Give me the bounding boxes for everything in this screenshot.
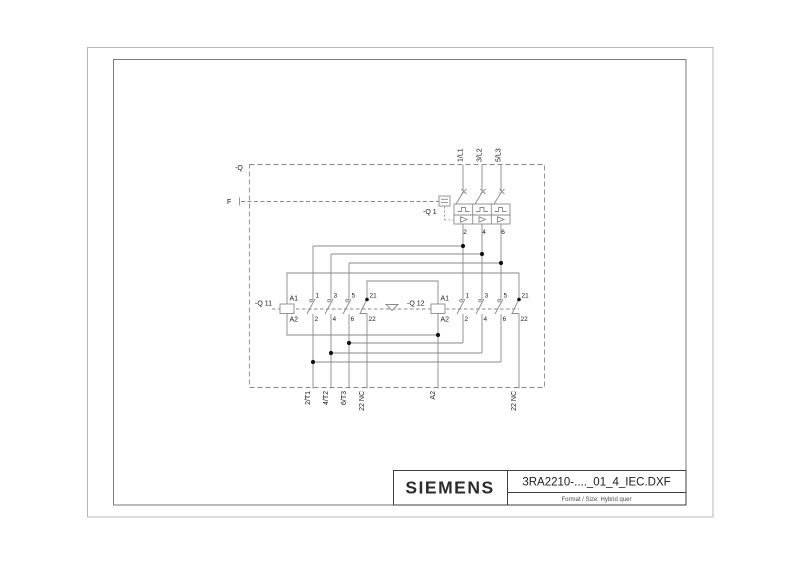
aux-terminal-label: 21 — [370, 293, 378, 300]
pole-terminal-label: 4 — [484, 316, 488, 323]
brand-logo: SIEMENS — [405, 478, 494, 498]
contactor-q12: -Q 12 A1 A2 1 2 3 4 5 6 21 22 — [406, 293, 529, 324]
pole-terminal-label: 6 — [351, 316, 355, 323]
pole-terminal-label: 2 — [465, 316, 469, 323]
breaker-contacts-icon — [456, 189, 505, 204]
nc-contact-icon — [512, 299, 519, 314]
pole-terminal-label: 5 — [504, 293, 508, 300]
schematic-canvas: -Q F 1/L1 3/L2 5/L3 -Q 1 — [0, 0, 800, 565]
outgoing-terminal-label: 2/T1 — [305, 391, 312, 405]
pole-terminal-label: 1 — [316, 293, 320, 300]
no-contact-icon — [457, 299, 503, 314]
breaker-terminal-label: 6 — [501, 229, 505, 236]
boundary-dashed-rect — [250, 165, 545, 388]
incoming-line-label: 1/L1 — [458, 148, 465, 162]
contactor-label: -Q 11 — [255, 301, 272, 308]
incoming-line-label: 5/L3 — [496, 148, 503, 162]
outgoing-terminal-label: 6/T3 — [341, 391, 348, 405]
outgoing-terminal-label: 4/T2 — [323, 391, 330, 405]
contactor-label: -Q 12 — [407, 301, 425, 308]
trip-link-line: F — [227, 198, 439, 207]
no-contact-icon — [307, 299, 351, 314]
outgoing-terminal-label: 22 NC — [511, 391, 518, 411]
pole-terminal-label: 6 — [503, 316, 507, 323]
incoming-lines: 1/L1 3/L2 5/L3 — [458, 148, 503, 191]
inner-frame — [114, 60, 687, 506]
coil-icon — [280, 304, 294, 314]
pole-terminal-label: 3 — [485, 293, 489, 300]
coil-terminal-label: A2 — [290, 317, 299, 324]
coil-terminal-label: A2 — [441, 317, 450, 324]
title-block: SIEMENS 3RA2210-...._01_4_IEC.DXF Format… — [394, 471, 687, 506]
pole-terminal-label: 2 — [315, 316, 319, 323]
format-info: Format / Size: Hybrid quer — [561, 497, 631, 503]
trip-link-label: F — [227, 199, 231, 206]
drawing-filename: 3RA2210-...._01_4_IEC.DXF — [522, 477, 670, 489]
outgoing-terminals: 2/T1 4/T2 6/T3 22 NC A2 22 NC — [305, 391, 518, 411]
breaker-q1: -Q 1 2 4 6 — [423, 189, 510, 236]
magnetic-release-icon — [454, 204, 510, 224]
aux-terminal-label: 22 — [369, 316, 377, 323]
pole-terminal-label: 3 — [334, 293, 338, 300]
incoming-line-label: 3/L2 — [477, 148, 484, 162]
contactor-q11: -Q 11 A1 A2 1 2 3 4 5 6 21 22 — [255, 293, 377, 324]
outgoing-terminal-label: 22 NC — [359, 391, 366, 411]
sheet-frames — [88, 48, 714, 518]
breaker-label: -Q 1 — [423, 209, 437, 216]
mechanical-interlock-icon — [386, 305, 398, 311]
outer-frame — [88, 48, 714, 518]
aux-terminal-label: 21 — [522, 293, 530, 300]
pole-terminal-label: 1 — [466, 293, 470, 300]
breaker-terminal-label: 4 — [482, 229, 486, 236]
supply-wires — [463, 165, 501, 191]
pole-terminal-label: 5 — [352, 293, 356, 300]
pole-terminal-label: 4 — [333, 316, 337, 323]
nc-contact-icon — [360, 299, 367, 314]
drawing-sheet: -Q F 1/L1 3/L2 5/L3 -Q 1 — [0, 0, 800, 565]
coil-terminal-label: A1 — [290, 296, 299, 303]
manual-actuator-icon — [439, 196, 454, 220]
breaker-terminal-label: 2 — [463, 229, 467, 236]
thermal-release-icon — [454, 204, 510, 215]
aux-terminal-label: 22 — [521, 316, 529, 323]
coil-icon — [431, 304, 445, 314]
outgoing-terminal-label: A2 — [430, 391, 437, 400]
feeder-label: -Q — [235, 165, 243, 172]
wiring — [287, 224, 519, 389]
coil-terminal-label: A1 — [441, 296, 450, 303]
